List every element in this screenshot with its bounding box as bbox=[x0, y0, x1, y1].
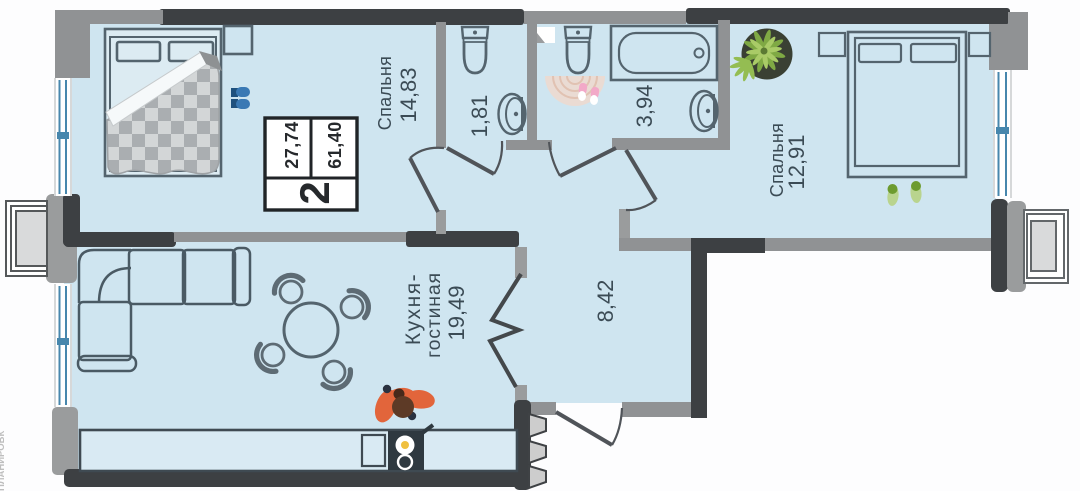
svg-text:27,74: 27,74 bbox=[282, 121, 302, 169]
svg-text:8,42: 8,42 bbox=[593, 280, 618, 323]
svg-text:1,81: 1,81 bbox=[467, 95, 492, 138]
svg-text:Кухня-: Кухня- bbox=[402, 273, 425, 345]
svg-text:61,40: 61,40 bbox=[325, 121, 345, 169]
svg-text:19,49: 19,49 bbox=[444, 285, 469, 340]
svg-text:гостиная: гостиная bbox=[423, 272, 445, 358]
svg-text:12,91: 12,91 bbox=[784, 134, 809, 189]
svg-text:14,83: 14,83 bbox=[396, 67, 421, 122]
svg-text:ПЛАНИРОВК: ПЛАНИРОВК bbox=[0, 430, 7, 491]
svg-text:Спальня: Спальня bbox=[375, 56, 395, 130]
svg-text:3,94: 3,94 bbox=[632, 85, 657, 128]
svg-text:2: 2 bbox=[291, 181, 338, 204]
